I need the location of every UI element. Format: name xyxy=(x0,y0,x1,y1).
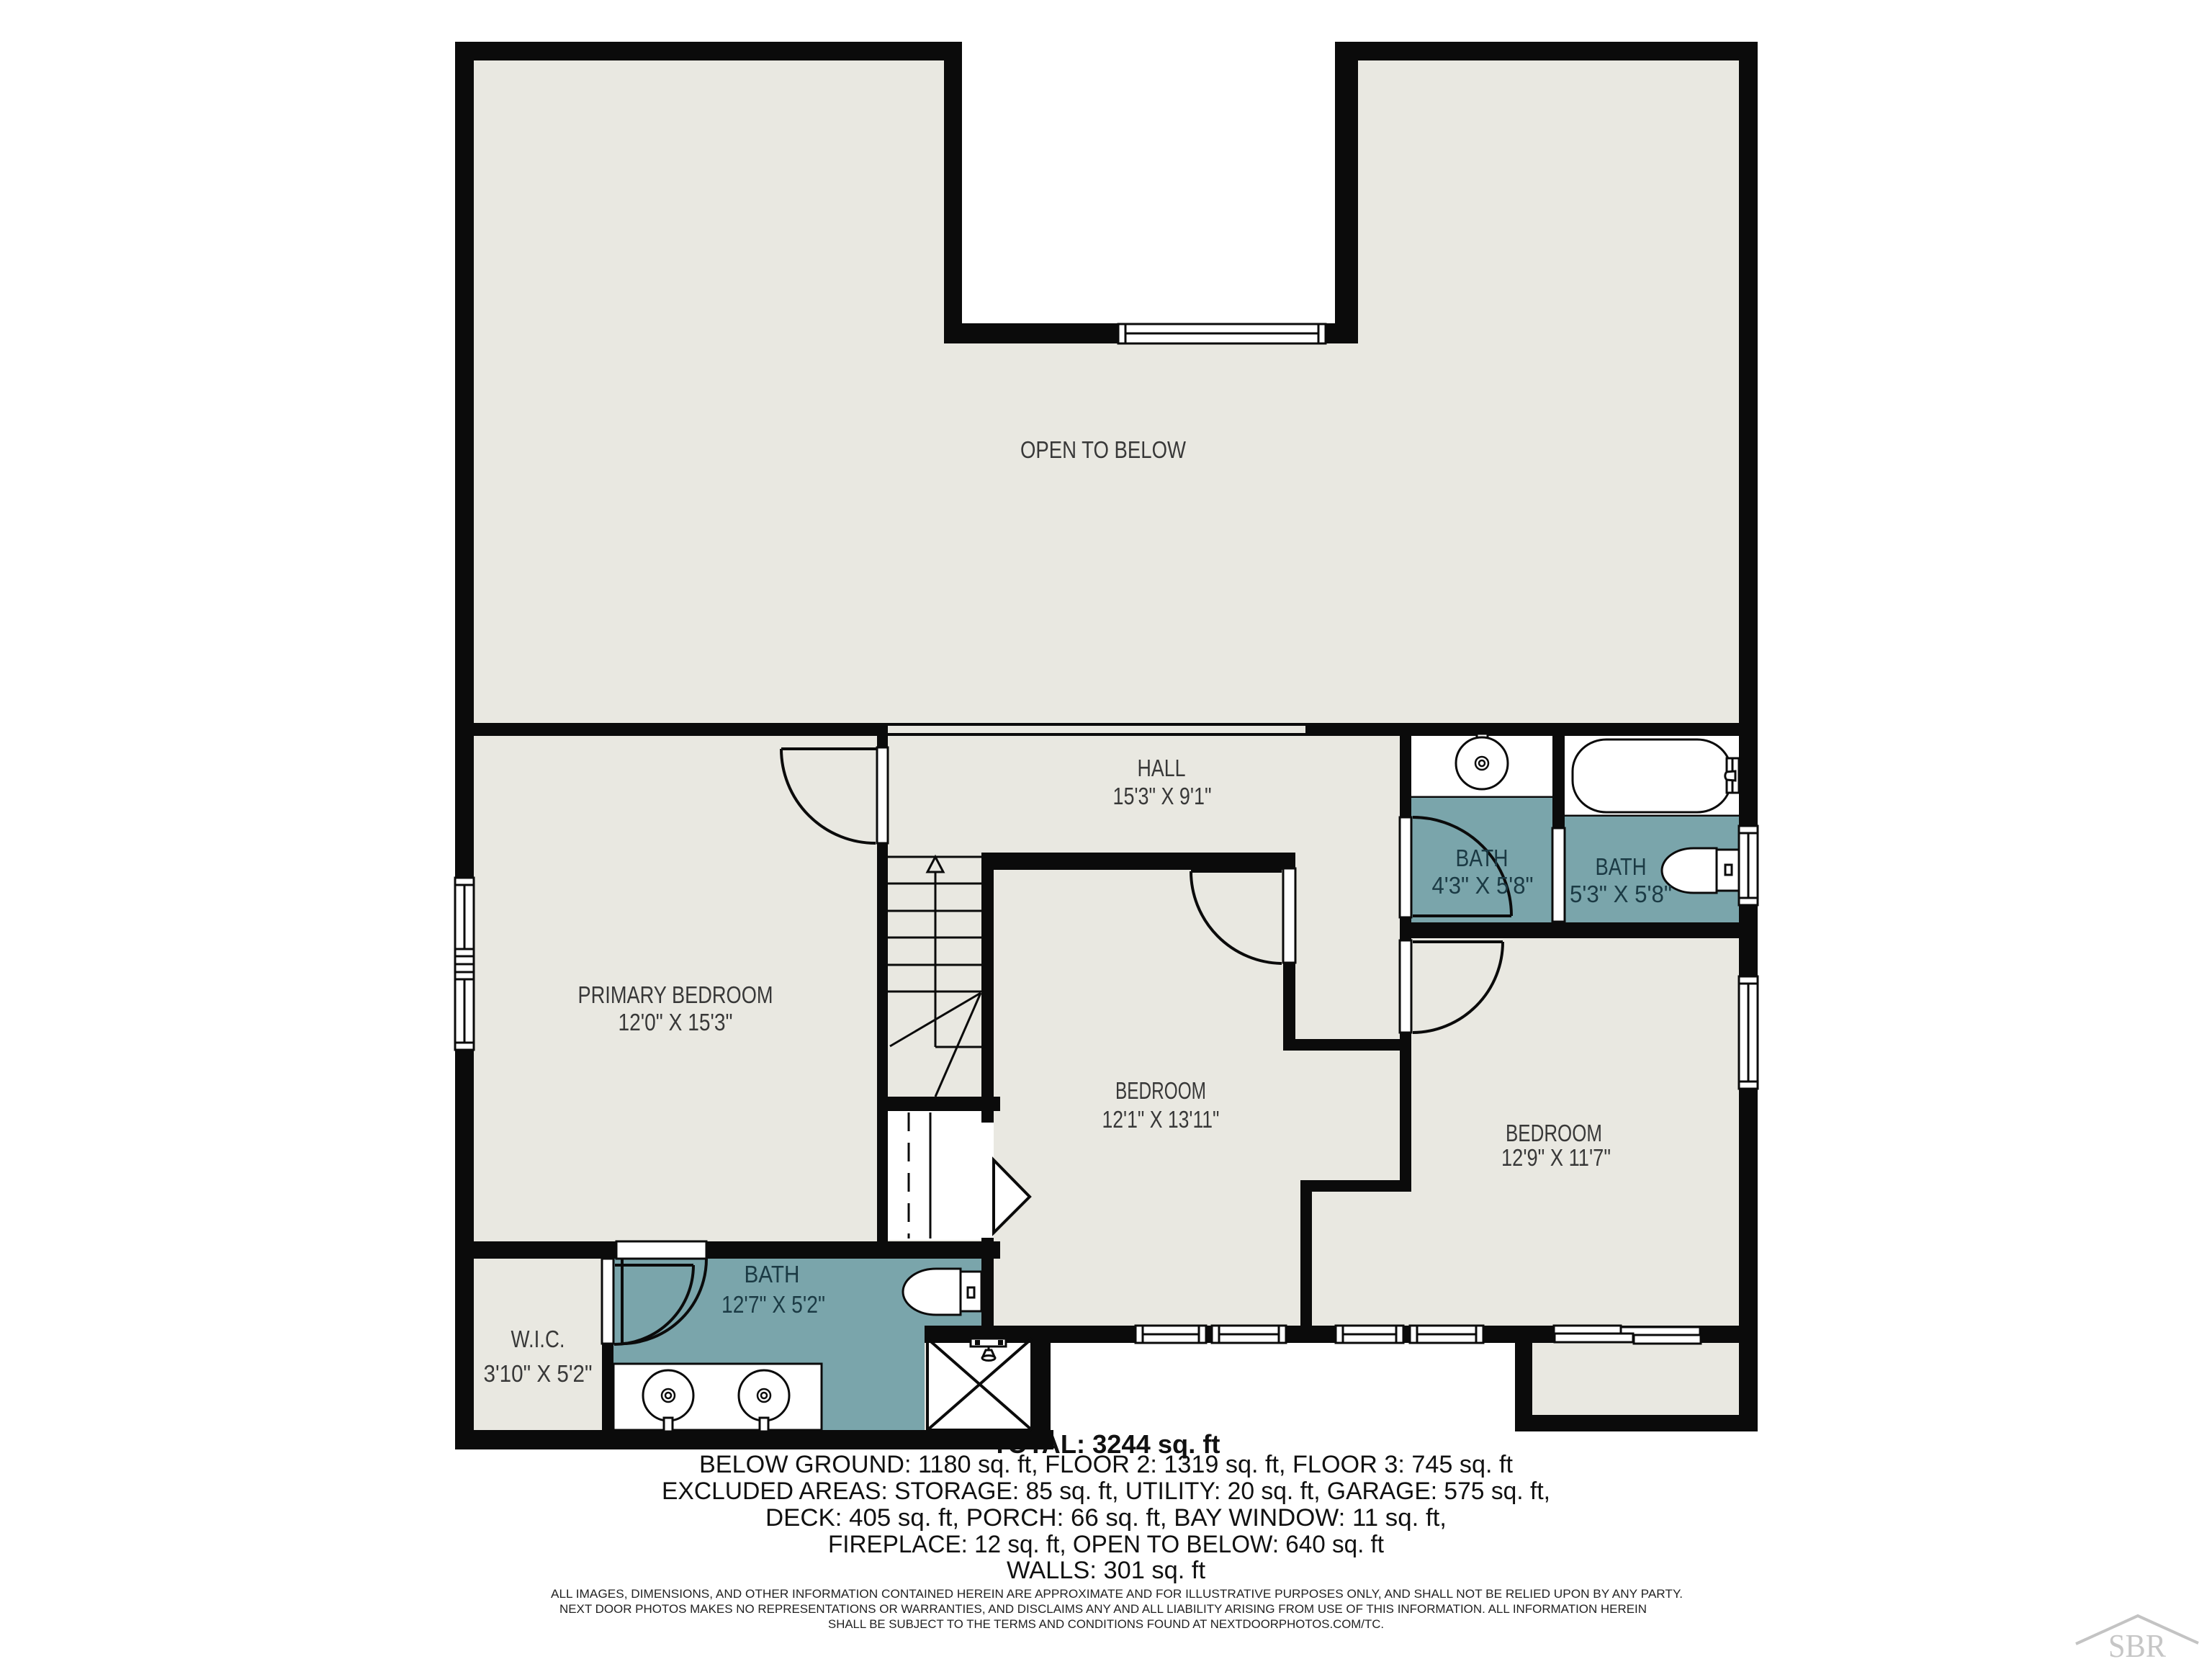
svg-text:BATH: BATH xyxy=(1596,853,1647,880)
svg-text:PRIMARY BEDROOM: PRIMARY BEDROOM xyxy=(578,981,773,1008)
svg-text:EXCLUDED AREAS: STORAGE: 85 sq: EXCLUDED AREAS: STORAGE: 85 sq. ft, UTIL… xyxy=(662,1478,1550,1505)
svg-text:12'1" X 13'11": 12'1" X 13'11" xyxy=(1102,1106,1220,1133)
svg-text:SHALL BE SUBJECT TO THE TERMS: SHALL BE SUBJECT TO THE TERMS AND CONDIT… xyxy=(828,1617,1384,1631)
svg-text:W.I.C.: W.I.C. xyxy=(511,1326,565,1352)
svg-text:12'7" X 5'2": 12'7" X 5'2" xyxy=(721,1291,825,1318)
svg-text:NEXT DOOR PHOTOS MAKES NO REPR: NEXT DOOR PHOTOS MAKES NO REPRESENTATION… xyxy=(559,1602,1647,1616)
svg-text:12'9" X 11'7": 12'9" X 11'7" xyxy=(1501,1144,1611,1171)
svg-text:12'0" X 15'3": 12'0" X 15'3" xyxy=(619,1009,733,1035)
svg-text:5'3" X 5'8": 5'3" X 5'8" xyxy=(1570,881,1672,907)
svg-text:ALL IMAGES, DIMENSIONS, AND OT: ALL IMAGES, DIMENSIONS, AND OTHER INFORM… xyxy=(551,1587,1683,1601)
svg-text:SBR: SBR xyxy=(2108,1627,2166,1659)
svg-text:BATH: BATH xyxy=(745,1261,800,1287)
svg-text:15'3" X 9'1": 15'3" X 9'1" xyxy=(1113,783,1212,809)
svg-text:BEDROOM: BEDROOM xyxy=(1115,1077,1206,1104)
svg-text:BATH: BATH xyxy=(1456,845,1509,871)
svg-text:FIREPLACE: 12 sq. ft, OPEN TO: FIREPLACE: 12 sq. ft, OPEN TO BELOW: 640… xyxy=(828,1531,1385,1558)
svg-text:3'10" X 5'2": 3'10" X 5'2" xyxy=(484,1360,593,1387)
svg-text:HALL: HALL xyxy=(1138,755,1186,781)
svg-text:4'3" X 5'8": 4'3" X 5'8" xyxy=(1432,872,1534,899)
svg-text:DECK: 405 sq. ft, PORCH: 66 sq: DECK: 405 sq. ft, PORCH: 66 sq. ft, BAY … xyxy=(765,1504,1447,1532)
svg-text:OPEN TO BELOW: OPEN TO BELOW xyxy=(1020,436,1187,463)
svg-text:BEDROOM: BEDROOM xyxy=(1506,1120,1602,1146)
svg-text:BELOW GROUND: 1180 sq. ft, FLO: BELOW GROUND: 1180 sq. ft, FLOOR 2: 1319… xyxy=(699,1451,1514,1478)
svg-text:WALLS: 301 sq. ft: WALLS: 301 sq. ft xyxy=(1007,1557,1206,1584)
